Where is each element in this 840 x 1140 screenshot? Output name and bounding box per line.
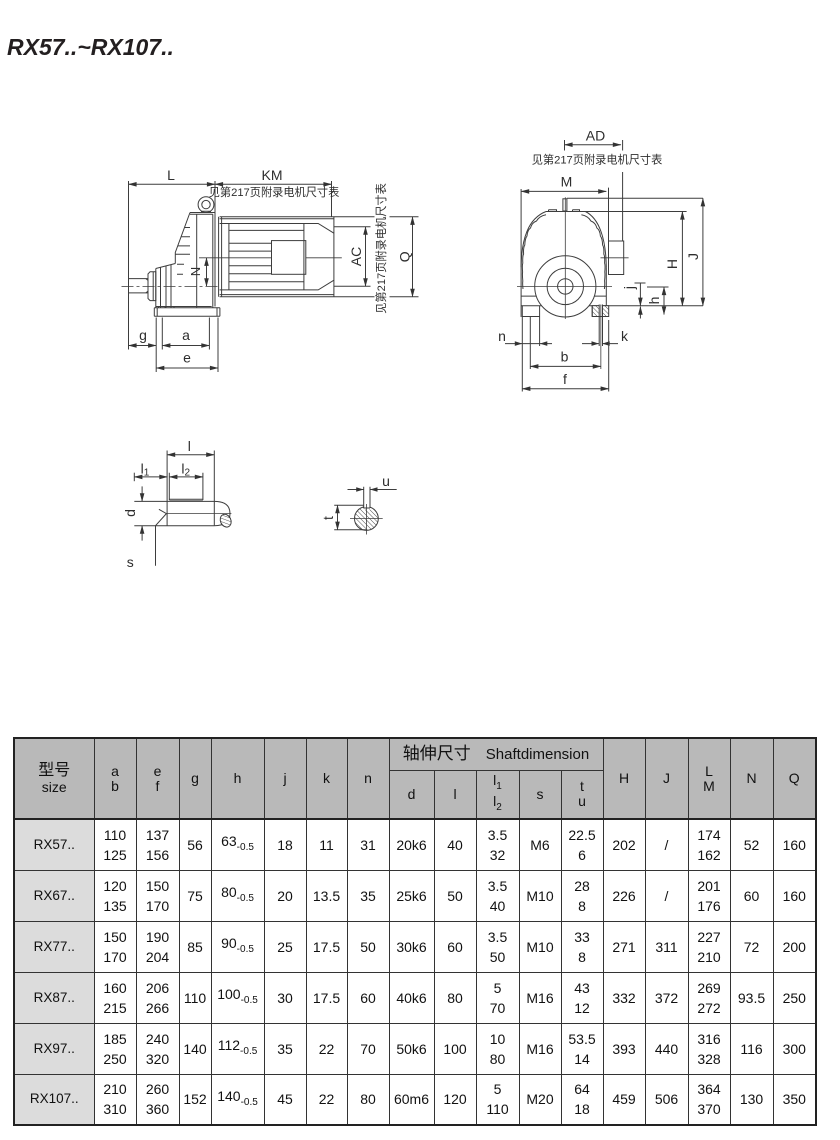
svg-text:N: N bbox=[188, 267, 203, 276]
svg-text:b: b bbox=[561, 349, 569, 365]
svg-text:u: u bbox=[382, 473, 390, 489]
svg-text:L: L bbox=[167, 167, 175, 183]
svg-text:l1: l1 bbox=[141, 461, 150, 479]
svg-text:l2: l2 bbox=[181, 461, 190, 479]
svg-text:l: l bbox=[188, 438, 191, 454]
svg-text:d: d bbox=[122, 509, 138, 517]
svg-text:AC: AC bbox=[348, 247, 364, 266]
svg-text:j: j bbox=[621, 286, 637, 290]
svg-text:见第217页附录电机尺寸表: 见第217页附录电机尺寸表 bbox=[209, 185, 340, 199]
svg-text:n: n bbox=[498, 328, 506, 344]
svg-text:f: f bbox=[563, 371, 567, 387]
svg-text:g: g bbox=[139, 327, 147, 343]
svg-text:J: J bbox=[685, 253, 701, 260]
svg-text:e: e bbox=[183, 350, 191, 366]
svg-text:h: h bbox=[646, 297, 662, 305]
svg-text:AD: AD bbox=[586, 128, 605, 144]
svg-text:KM: KM bbox=[262, 167, 283, 183]
svg-text:Q: Q bbox=[397, 251, 413, 262]
svg-text:见第217页附录电机尺寸表: 见第217页附录电机尺寸表 bbox=[374, 183, 388, 314]
svg-text:a: a bbox=[182, 327, 190, 343]
svg-text:H: H bbox=[664, 259, 680, 269]
svg-text:k: k bbox=[621, 328, 629, 344]
svg-text:M: M bbox=[561, 174, 573, 190]
svg-text:见第217页附录电机尺寸表: 见第217页附录电机尺寸表 bbox=[532, 153, 663, 167]
svg-text:t: t bbox=[320, 516, 336, 520]
svg-text:s: s bbox=[127, 554, 134, 570]
